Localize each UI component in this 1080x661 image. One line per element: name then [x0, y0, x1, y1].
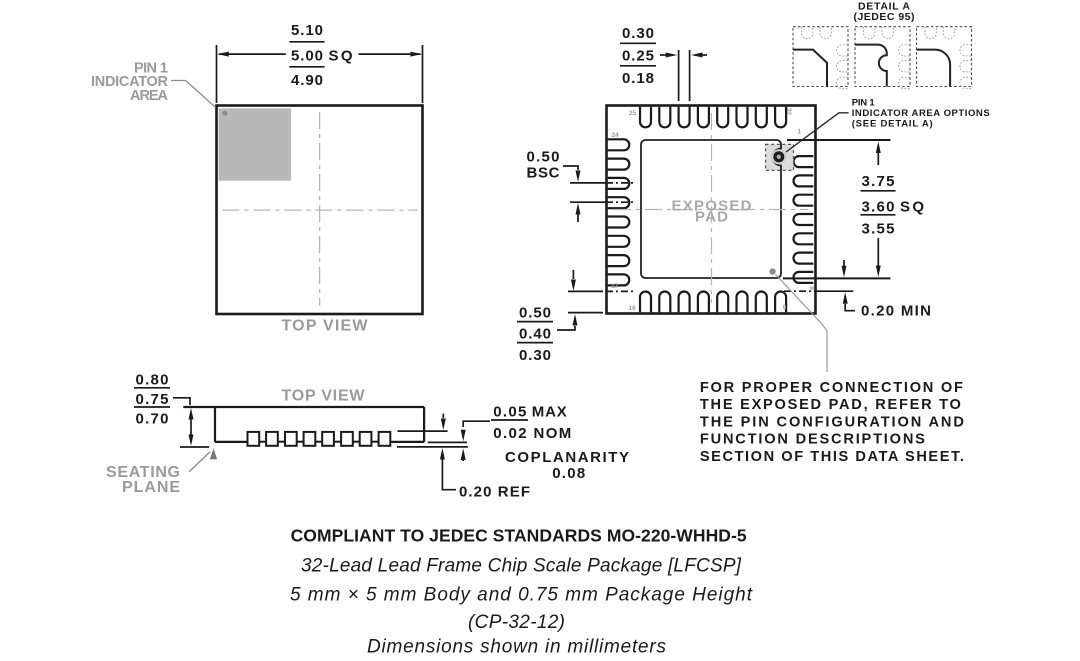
svg-text:COPLANARITY: COPLANARITY [505, 449, 629, 466]
svg-text:0.40: 0.40 [519, 326, 551, 343]
svg-text:(SEE DETAIL A): (SEE DETAIL A) [852, 119, 933, 130]
svg-text:SECTION OF THIS DATA SHEET.: SECTION OF THIS DATA SHEET. [700, 449, 964, 465]
svg-text:1: 1 [798, 129, 802, 136]
svg-text:9: 9 [783, 305, 787, 312]
svg-text:BSC: BSC [527, 165, 560, 182]
svg-text:INDICATOR AREA OPTIONS: INDICATOR AREA OPTIONS [852, 108, 990, 119]
svg-text:0.70: 0.70 [136, 411, 169, 428]
svg-text:MAX: MAX [532, 403, 567, 420]
svg-text:0.05: 0.05 [493, 403, 526, 420]
svg-text:PLANE: PLANE [122, 479, 180, 496]
svg-text:AREA: AREA [130, 88, 169, 104]
svg-text:SQ: SQ [329, 47, 353, 64]
svg-text:0.25: 0.25 [622, 48, 654, 65]
svg-text:0.30: 0.30 [519, 347, 551, 364]
svg-text:(CP-32-12): (CP-32-12) [468, 612, 565, 633]
svg-text:25: 25 [629, 110, 637, 117]
svg-text:0.50: 0.50 [527, 149, 560, 166]
svg-text:TOP VIEW: TOP VIEW [282, 387, 366, 404]
svg-text:32: 32 [785, 108, 792, 116]
svg-text:3.55: 3.55 [862, 221, 895, 238]
svg-text:PAD: PAD [695, 209, 728, 226]
svg-text:3.60: 3.60 [862, 198, 895, 215]
svg-text:32-Lead Lead Frame Chip Scale: 32-Lead Lead Frame Chip Scale Package [L… [301, 556, 742, 577]
svg-text:PIN 1: PIN 1 [852, 97, 876, 108]
svg-text:0.20 REF: 0.20 REF [459, 484, 530, 501]
svg-text:17: 17 [611, 283, 619, 290]
svg-text:0.30: 0.30 [622, 25, 654, 42]
svg-text:5 mm × 5 mm Body and 0.75 mm P: 5 mm × 5 mm Body and 0.75 mm Package Hei… [290, 585, 753, 606]
svg-text:COMPLIANT TO JEDEC STANDARDS M: COMPLIANT TO JEDEC STANDARDS MO-220-WHHD… [291, 526, 747, 546]
svg-text:5.00: 5.00 [291, 47, 323, 64]
svg-text:FOR PROPER CONNECTION OF: FOR PROPER CONNECTION OF [700, 380, 963, 396]
svg-text:0.50: 0.50 [519, 304, 551, 321]
svg-text:TOP VIEW: TOP VIEW [282, 318, 369, 335]
svg-text:8: 8 [808, 286, 815, 290]
svg-text:16: 16 [629, 305, 637, 312]
svg-text:3.75: 3.75 [862, 173, 895, 190]
svg-text:0.80: 0.80 [136, 372, 169, 389]
svg-text:0.18: 0.18 [622, 70, 654, 87]
svg-text:Dimensions shown in millimeter: Dimensions shown in millimeters [367, 637, 667, 657]
svg-text:0.75: 0.75 [136, 391, 169, 408]
svg-text:0.08: 0.08 [552, 465, 585, 482]
svg-text:(JEDEC 95): (JEDEC 95) [854, 11, 915, 23]
svg-text:5.10: 5.10 [291, 22, 323, 39]
svg-text:4.90: 4.90 [291, 72, 323, 89]
svg-text:0.20 MIN: 0.20 MIN [861, 302, 931, 319]
svg-text:SQ: SQ [900, 198, 924, 215]
svg-text:24: 24 [612, 132, 620, 139]
